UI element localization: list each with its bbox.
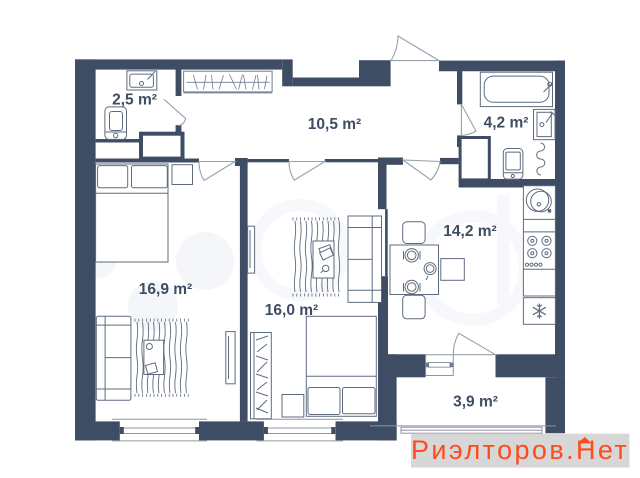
svg-text:4,2 m²: 4,2 m²: [484, 115, 529, 132]
svg-text:2,5 m²: 2,5 m²: [112, 92, 157, 109]
svg-text:16,9 m²: 16,9 m²: [139, 281, 192, 298]
svg-text:3,9 m²: 3,9 m²: [453, 394, 498, 411]
svg-text:Риэлторов.Нет: Риэлторов.Нет: [411, 435, 629, 465]
svg-text:16,0 m²: 16,0 m²: [265, 302, 318, 319]
svg-text:14,2 m²: 14,2 m²: [443, 223, 496, 240]
svg-text:10,5 m²: 10,5 m²: [308, 116, 361, 133]
